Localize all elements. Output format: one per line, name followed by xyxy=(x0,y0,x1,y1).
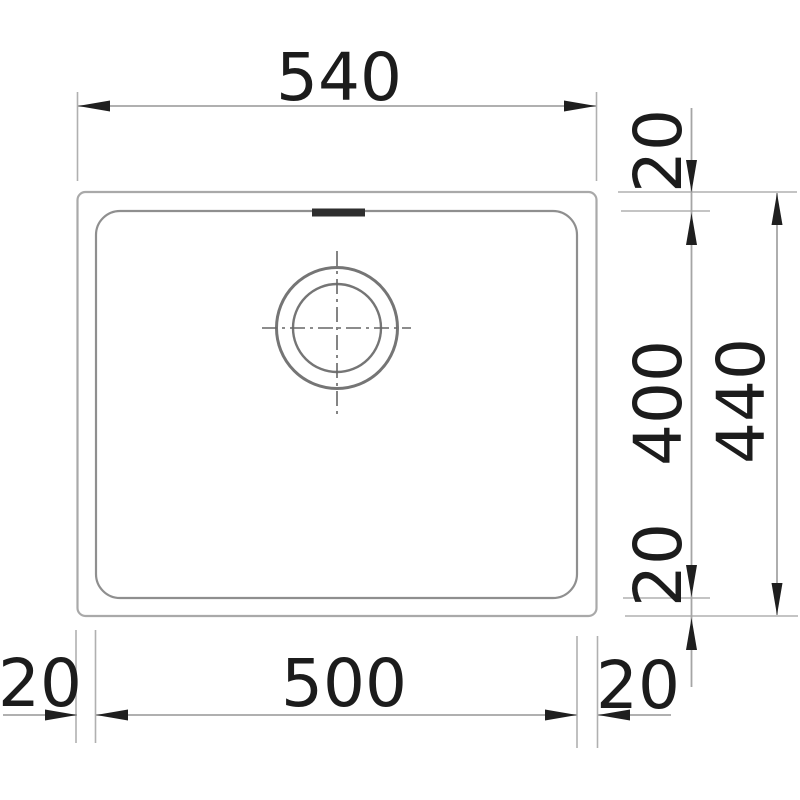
dim-label-rim-right: 20 xyxy=(596,647,680,724)
arrowhead-up xyxy=(772,193,783,225)
dim-label-rim-bottom: 20 xyxy=(620,523,697,607)
arrowhead-up xyxy=(686,213,697,245)
dimension-overall-depth: 440 xyxy=(703,193,783,615)
dim-label-overall-depth: 440 xyxy=(703,338,780,464)
arrowhead-up xyxy=(686,618,697,650)
dim-label-overall-width: 540 xyxy=(276,39,402,116)
dim-label-rim-top: 20 xyxy=(620,109,697,193)
drawing-canvas: 540 20 400 20 440 xyxy=(0,0,800,800)
dimension-overall-width: 540 xyxy=(78,39,597,181)
overflow-mark xyxy=(312,209,365,217)
dimension-bottom: 20 500 20 xyxy=(0,630,680,748)
dim-label-bowl-width: 500 xyxy=(281,645,407,722)
arrowhead-left xyxy=(96,710,128,721)
arrowhead-right xyxy=(545,710,577,721)
arrowhead-left xyxy=(78,101,110,112)
arrowhead-right xyxy=(564,101,596,112)
dim-label-bowl-depth: 400 xyxy=(620,340,697,466)
arrowhead-down xyxy=(772,583,783,615)
dim-label-rim-left: 20 xyxy=(0,645,82,722)
sink-technical-drawing: 540 20 400 20 440 xyxy=(0,0,800,800)
